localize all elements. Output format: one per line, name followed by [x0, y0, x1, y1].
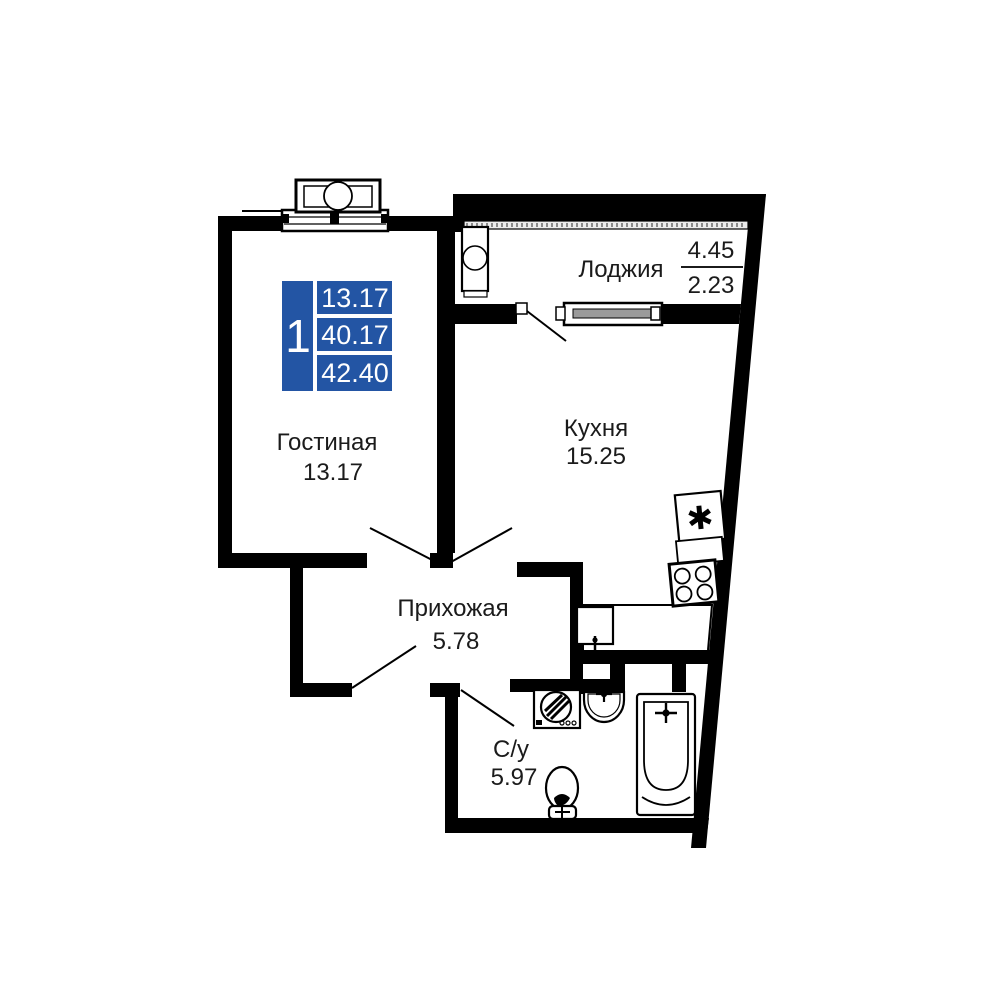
bathroom-door-swing [461, 690, 514, 726]
bathroom-area: 5.97 [491, 764, 538, 791]
entrance-door-swing [352, 646, 416, 688]
loggia-window-sash [573, 309, 654, 318]
balcony-box-circle [324, 182, 352, 210]
living-room-area: 13.17 [303, 459, 363, 486]
wall-loggia-bottom-left [455, 304, 517, 324]
balcony-door-hinge [516, 303, 527, 314]
wall-hall-bottom [290, 683, 352, 697]
wall-loggia-top [455, 194, 766, 222]
kitchen-sink-drain [592, 637, 597, 642]
kitchen-opening-line [451, 528, 512, 562]
floor-plan: ✱ [0, 0, 1000, 1000]
bathtub-icon [637, 694, 695, 815]
wall-hall-left [290, 568, 303, 697]
hallway-label: Прихожая [397, 595, 508, 622]
window-center-block [330, 213, 339, 224]
washing-machine-icon [534, 690, 580, 728]
loggia-riser-base [464, 291, 487, 297]
bathroom-fixtures [534, 686, 695, 819]
loggia-window-cap [651, 307, 660, 320]
living-room-opening-line [370, 528, 436, 562]
hallway-area: 5.78 [433, 628, 480, 655]
wall-livingroom-right [437, 216, 455, 553]
legend-area-value: 40.17 [321, 320, 389, 350]
wall-loggia-bottom-right [660, 304, 741, 324]
toilet-icon [546, 767, 578, 819]
wall-kitchen-bottom [570, 650, 722, 664]
wall-duct-stub-a [610, 664, 625, 692]
wall-livingroom-bottom [218, 553, 367, 568]
living-room-label: Гостиная [277, 429, 378, 456]
kitchen-area: 15.25 [566, 443, 626, 470]
bathroom-sink-icon [584, 686, 624, 722]
wall-top-left-segment [218, 216, 284, 231]
loggia-label: Лоджия [578, 256, 663, 283]
window-end-block [381, 214, 387, 223]
fridge-icon: ✱ [675, 491, 725, 543]
window-end-block [283, 214, 289, 223]
unit-legend: 1 13.17 40.17 42.40 [282, 281, 392, 391]
loggia-area-full: 4.45 [688, 237, 735, 264]
kitchen-label: Кухня [564, 415, 628, 442]
loggia-area-counted: 2.23 [688, 272, 735, 299]
legend-area-value: 42.40 [321, 358, 389, 388]
wall-bath-left [445, 683, 458, 833]
legend-area-value: 13.17 [321, 283, 389, 313]
wall-duct-stub-b [672, 664, 686, 692]
legend-rooms-count: 1 [285, 310, 311, 362]
wall-left [218, 216, 232, 568]
loggia-riser-circle [463, 246, 487, 270]
wall-hall-top-right [517, 562, 578, 577]
floor-plan-page: ✱ [0, 0, 1000, 1000]
loggia-window-cap [556, 307, 565, 320]
loggia-riser [462, 227, 488, 297]
bathroom-label: С/у [493, 736, 529, 763]
wall-bath-bottom [445, 818, 709, 833]
stove-icon [669, 560, 719, 606]
kitchen-fixtures: ✱ [577, 491, 725, 652]
fridge-glyph: ✱ [685, 499, 715, 537]
